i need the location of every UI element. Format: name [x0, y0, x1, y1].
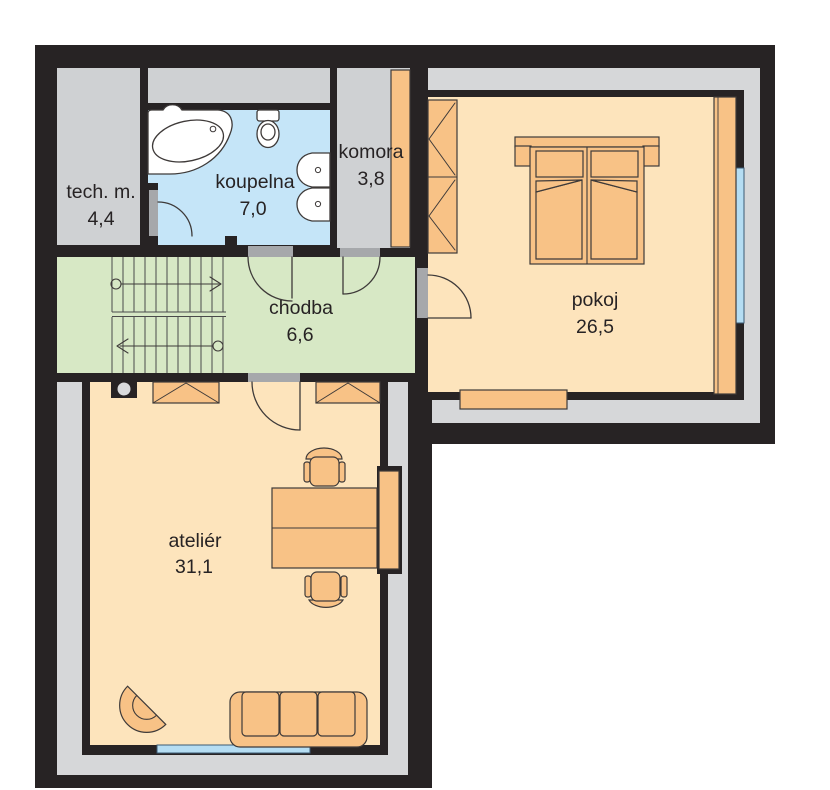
label-komora: komora: [338, 141, 403, 163]
label-koupelna-area: 7,0: [239, 198, 266, 220]
chair-icon: [305, 572, 347, 607]
label-pokoj: pokoj: [572, 289, 619, 311]
label-atelier: ateliér: [168, 530, 222, 552]
wardrobe-icon: [316, 382, 380, 403]
chair-icon: [304, 448, 345, 486]
bed-icon: [515, 137, 659, 264]
toilet-icon: [257, 110, 279, 148]
sink-icon: [297, 153, 330, 187]
label-pokoj-area: 26,5: [576, 316, 614, 338]
pokoj-sideboard-icon: [714, 97, 736, 394]
label-tech-m: tech. m.: [66, 181, 135, 203]
label-tech-m-area: 4,4: [87, 208, 114, 230]
floor-plan-drawing: tech. m. 4,4 koupelna 7,0 komora 3,8 pok…: [0, 0, 830, 790]
wall-stub-koupelna: [225, 236, 237, 251]
label-atelier-area: 31,1: [175, 556, 213, 578]
label-chodba: chodba: [269, 297, 333, 319]
label-komora-area: 3,8: [357, 168, 384, 190]
sofa-icon: [230, 692, 367, 747]
sink-icon: [297, 188, 330, 221]
koupelna-attic-band: [148, 68, 330, 103]
label-chodba-area: 6,6: [286, 324, 313, 346]
wardrobe-icon: [153, 382, 219, 403]
chimney-icon: [111, 380, 137, 398]
pokoj-window-sill: [460, 390, 567, 409]
wardrobe-icon: [428, 100, 457, 253]
label-koupelna: koupelna: [215, 171, 294, 193]
desk-icon: [272, 488, 377, 568]
room-chodba-floor: [57, 257, 415, 373]
pokoj-attic-band: [428, 68, 744, 90]
bookshelf-icon: [377, 466, 402, 574]
floor-plan: tech. m. 4,4 koupelna 7,0 komora 3,8 pok…: [0, 0, 830, 790]
